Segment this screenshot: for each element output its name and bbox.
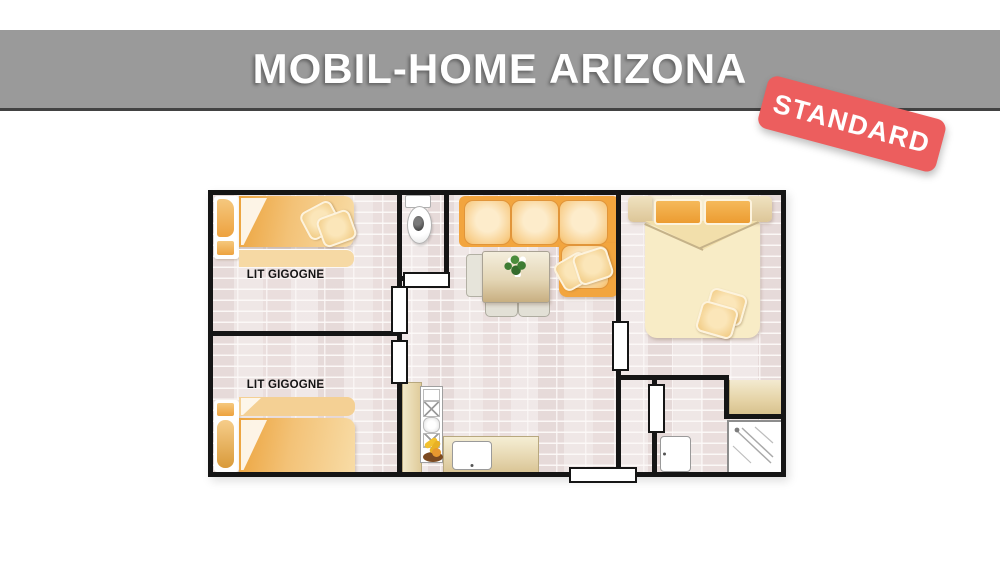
vanity-counter — [729, 380, 782, 414]
sofa-cushion — [464, 200, 511, 245]
bedroom-right-door-opening-icon — [612, 321, 629, 371]
wall — [208, 190, 786, 195]
fruit-bowl-icon — [422, 438, 444, 464]
page: MOBIL-HOME ARIZONA STANDARD — [0, 0, 1000, 563]
bedroom-bottom-door-opening-icon — [391, 340, 408, 384]
kitchen-cabinet — [402, 382, 422, 474]
bedroom-label: LIT GIGOGNE — [218, 269, 353, 281]
washbasin-icon — [660, 436, 691, 472]
shower-icon — [727, 420, 783, 474]
wall — [208, 472, 786, 477]
floorplan: LIT GIGOGNE LIT GIGOGNE — [208, 190, 786, 477]
sofa-cushion — [511, 200, 559, 245]
sofa-cushion — [559, 200, 608, 245]
wall — [616, 375, 729, 380]
wc-door-opening-icon — [403, 272, 450, 288]
wall — [724, 414, 786, 419]
pillow — [654, 199, 702, 225]
pillow — [704, 199, 752, 225]
single-bed-headboard — [214, 196, 239, 259]
wall — [724, 375, 729, 419]
sink-icon — [452, 441, 492, 470]
plant-icon — [502, 253, 530, 277]
bedroom-label: LIT GIGOGNE — [218, 379, 353, 391]
wall — [781, 190, 786, 477]
wall — [444, 190, 449, 281]
toilet-seat — [413, 216, 424, 231]
wall — [208, 331, 402, 336]
single-bed-headboard — [214, 400, 239, 472]
bathroom-door-opening-icon — [648, 384, 665, 433]
page-title: MOBIL-HOME ARIZONA — [253, 45, 748, 93]
headboard-block — [628, 196, 652, 222]
bedroom-top-door-opening-icon — [391, 286, 408, 334]
entrance-door-opening-icon — [569, 467, 637, 483]
trundle-bed — [239, 249, 354, 267]
stove-icon — [423, 401, 440, 417]
